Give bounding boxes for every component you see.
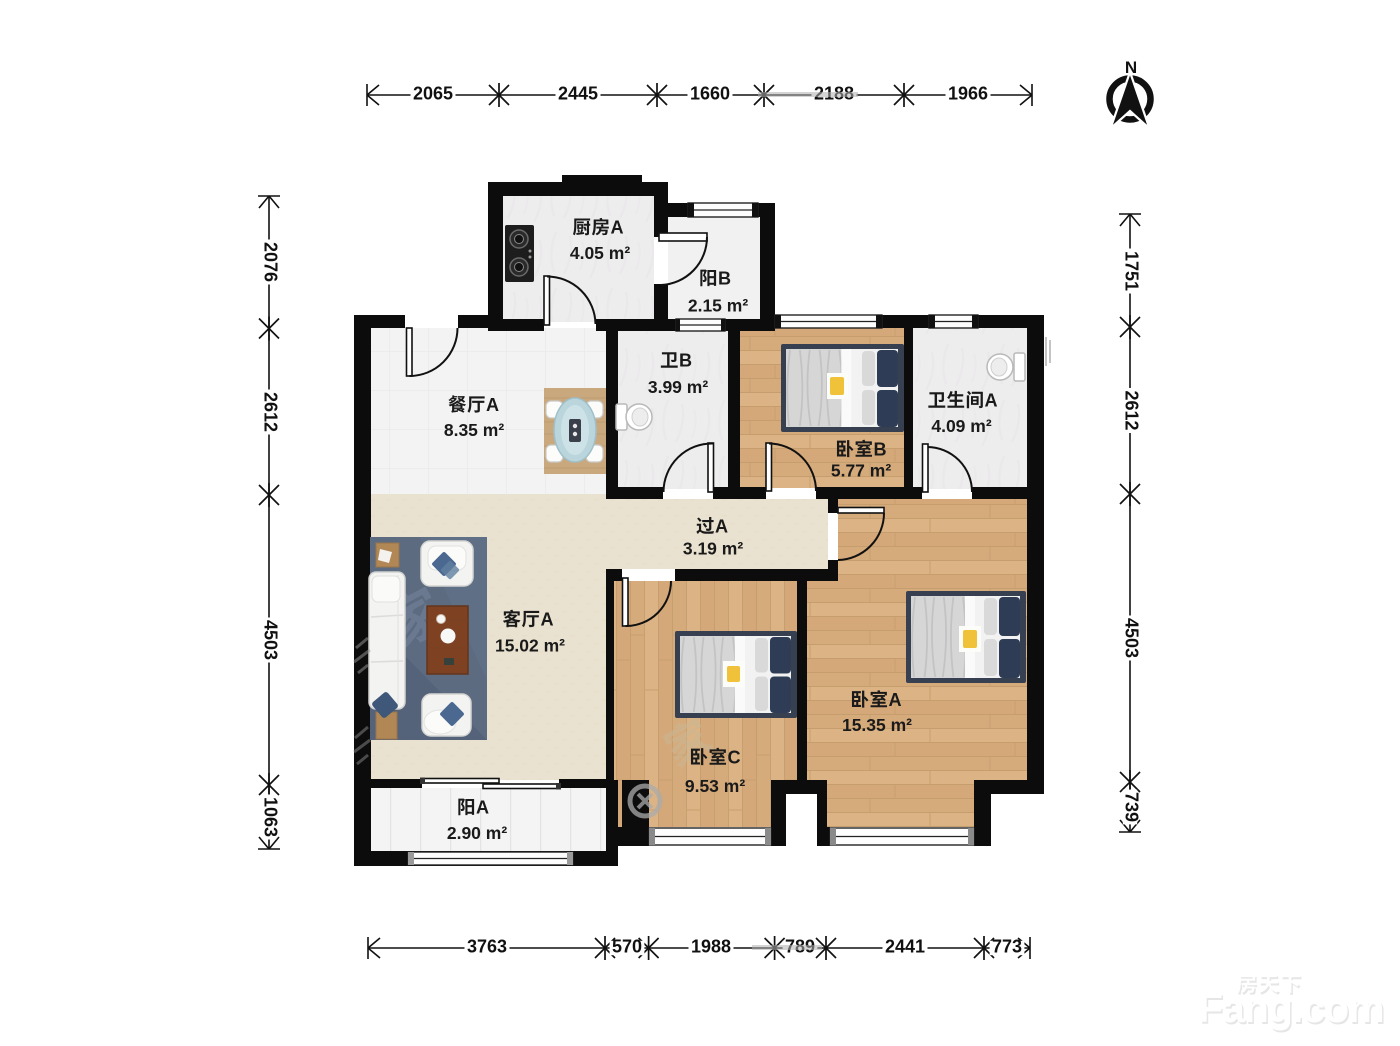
svg-text:B: B [874,440,887,460]
svg-text:A: A [541,610,554,630]
svg-text:1988: 1988 [691,937,731,957]
svg-text:2445: 2445 [558,84,598,104]
svg-text:1966: 1966 [948,84,988,104]
svg-text:A: A [985,391,998,411]
svg-text:4.05 m²: 4.05 m² [570,243,630,263]
svg-text:1063: 1063 [261,797,281,837]
svg-text:3.19 m²: 3.19 m² [683,538,743,558]
svg-text:2076: 2076 [261,242,281,282]
svg-text:3.99 m²: 3.99 m² [648,377,708,397]
svg-text:15.35 m²: 15.35 m² [842,715,912,735]
svg-text:2.15 m²: 2.15 m² [688,295,748,315]
svg-text:3763: 3763 [467,937,507,957]
svg-text:4503: 4503 [1122,618,1142,658]
svg-text:2612: 2612 [261,392,281,432]
svg-text:2612: 2612 [1122,390,1142,430]
svg-text:2065: 2065 [413,84,453,104]
svg-text:A: A [889,690,902,710]
svg-text:2.90 m²: 2.90 m² [447,823,507,843]
svg-text:570: 570 [612,937,642,957]
svg-text:1660: 1660 [690,84,730,104]
svg-text:2441: 2441 [885,937,925,957]
svg-text:A: A [715,517,728,537]
svg-text:A: A [486,395,499,415]
svg-text:4503: 4503 [261,620,281,660]
svg-text:Fang.com: Fang.com [1198,985,1384,1031]
svg-text:15.02 m²: 15.02 m² [495,635,565,655]
svg-text:A: A [611,218,624,238]
svg-text:739: 739 [1122,792,1142,822]
svg-text:B: B [679,351,692,371]
svg-text:B: B [718,269,731,289]
svg-text:1751: 1751 [1122,251,1142,291]
svg-text:5.77 m²: 5.77 m² [831,460,891,480]
svg-text:C: C [728,748,741,768]
svg-text:9.53 m²: 9.53 m² [685,776,745,796]
svg-text:773: 773 [992,937,1022,957]
svg-text:A: A [476,798,489,818]
svg-text:8.35 m²: 8.35 m² [444,420,504,440]
svg-text:4.09 m²: 4.09 m² [931,416,991,436]
